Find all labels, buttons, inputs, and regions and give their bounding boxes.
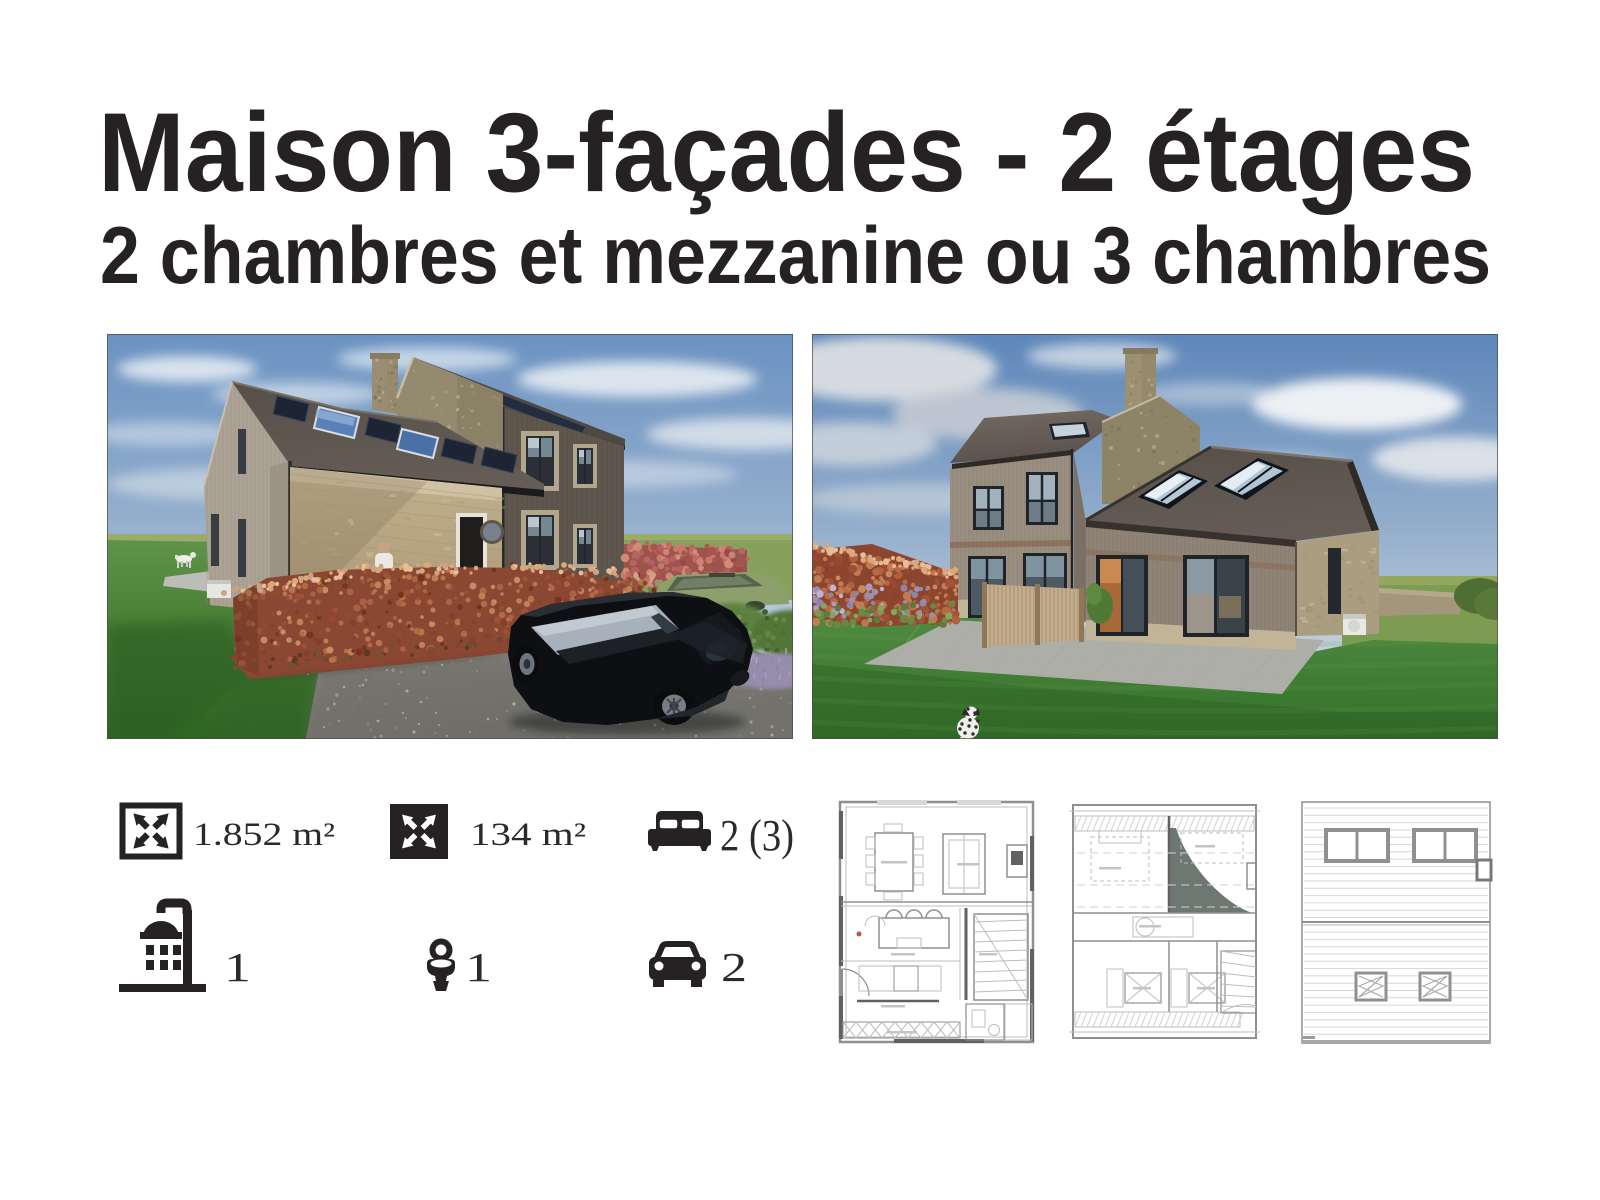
- svg-text:1.852 m²: 1.852 m²: [193, 817, 335, 853]
- svg-text:2: 2: [721, 944, 747, 990]
- svg-text:2 chambres et mezzanine ou 3 c: 2 chambres et mezzanine ou 3 chambres: [100, 211, 1491, 301]
- svg-text:2 (3): 2 (3): [720, 811, 794, 860]
- svg-text:Maison 3-façades - 2 étages: Maison 3-façades - 2 étages: [98, 90, 1475, 215]
- svg-text:1: 1: [224, 944, 251, 990]
- svg-text:1: 1: [465, 944, 492, 990]
- svg-text:134 m²: 134 m²: [470, 817, 586, 853]
